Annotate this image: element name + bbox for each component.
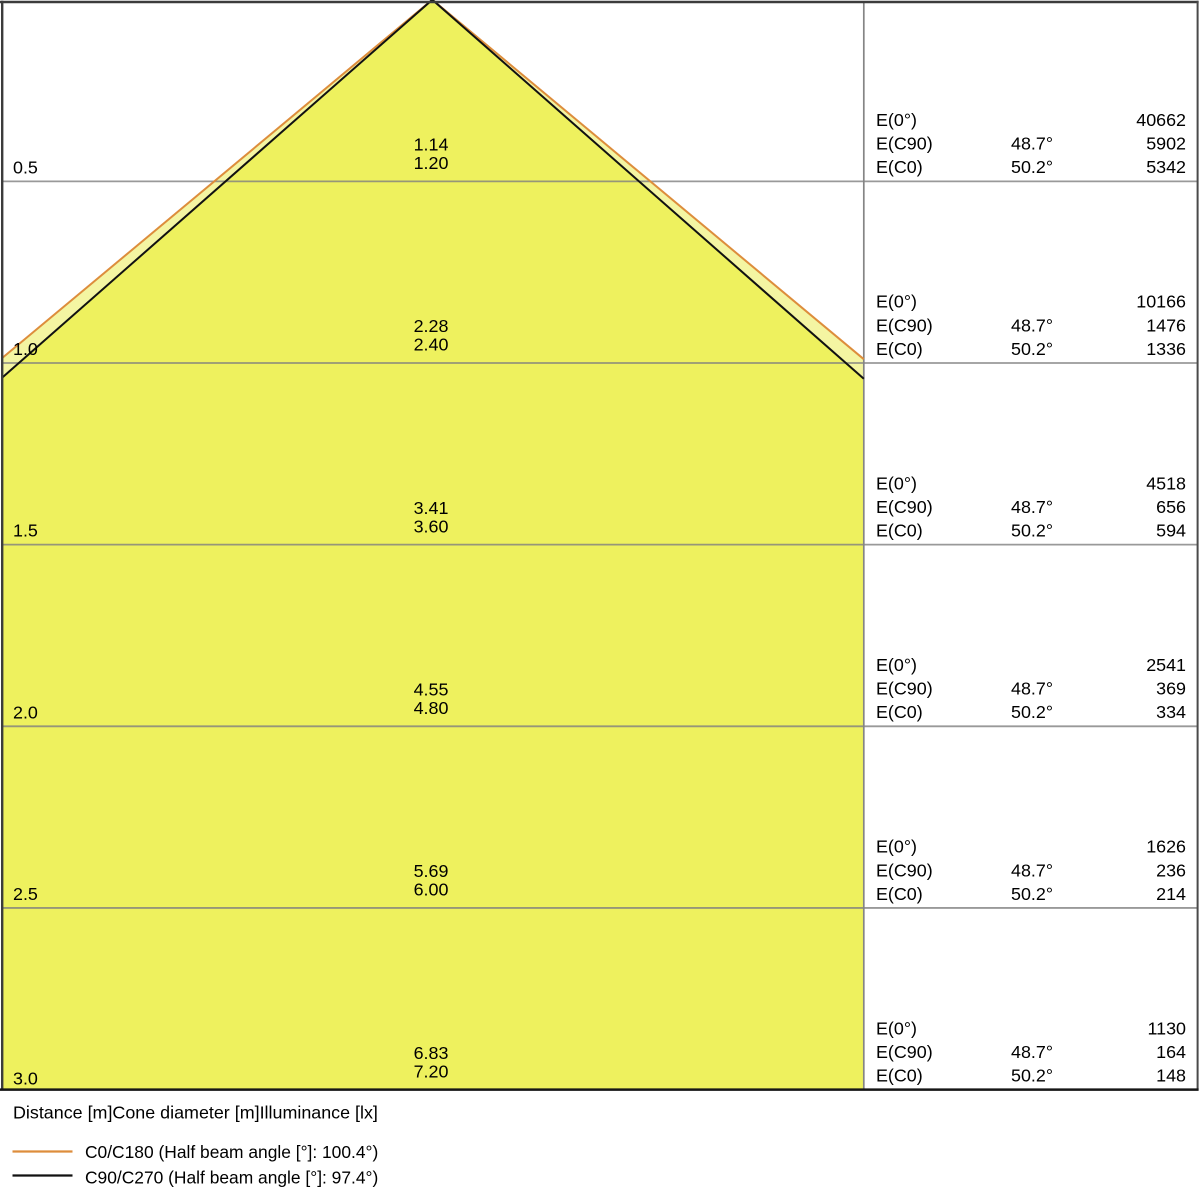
svg-text:48.7°: 48.7° bbox=[1011, 679, 1053, 699]
svg-text:E(0°): E(0°) bbox=[876, 655, 917, 675]
svg-text:50.2°: 50.2° bbox=[1011, 521, 1053, 541]
svg-text:E(C0): E(C0) bbox=[876, 339, 923, 359]
svg-text:1.14: 1.14 bbox=[414, 135, 449, 155]
svg-text:5.69: 5.69 bbox=[414, 861, 449, 881]
svg-text:48.7°: 48.7° bbox=[1011, 497, 1053, 517]
svg-text:E(C90): E(C90) bbox=[876, 315, 933, 335]
svg-text:1336: 1336 bbox=[1146, 339, 1186, 359]
svg-text:334: 334 bbox=[1156, 702, 1186, 722]
svg-text:50.2°: 50.2° bbox=[1011, 1066, 1053, 1086]
svg-text:48.7°: 48.7° bbox=[1011, 860, 1053, 880]
svg-text:2.40: 2.40 bbox=[414, 335, 449, 355]
svg-text:E(0°): E(0°) bbox=[876, 473, 917, 493]
svg-text:E(C0): E(C0) bbox=[876, 884, 923, 904]
svg-text:C90/C270 (Half beam angle [°]:: C90/C270 (Half beam angle [°]: 97.4°) bbox=[85, 1167, 378, 1187]
svg-text:1.5: 1.5 bbox=[13, 521, 38, 541]
svg-text:E(0°): E(0°) bbox=[876, 1018, 917, 1038]
svg-text:E(C90): E(C90) bbox=[876, 860, 933, 880]
svg-text:50.2°: 50.2° bbox=[1011, 702, 1053, 722]
svg-text:E(C0): E(C0) bbox=[876, 1066, 923, 1086]
svg-text:369: 369 bbox=[1156, 679, 1186, 699]
svg-text:E(C90): E(C90) bbox=[876, 134, 933, 154]
svg-text:3.0: 3.0 bbox=[13, 1069, 38, 1089]
svg-text:6.83: 6.83 bbox=[414, 1043, 449, 1063]
svg-text:4518: 4518 bbox=[1146, 473, 1186, 493]
svg-text:1476: 1476 bbox=[1146, 315, 1186, 335]
svg-text:1130: 1130 bbox=[1148, 1018, 1187, 1038]
svg-text:E(C0): E(C0) bbox=[876, 157, 923, 177]
svg-text:7.20: 7.20 bbox=[414, 1061, 449, 1081]
svg-text:10166: 10166 bbox=[1136, 292, 1186, 312]
svg-text:2.28: 2.28 bbox=[414, 316, 449, 336]
svg-text:E(0°): E(0°) bbox=[876, 837, 917, 857]
svg-text:48.7°: 48.7° bbox=[1011, 134, 1053, 154]
svg-text:2.5: 2.5 bbox=[13, 884, 38, 904]
svg-text:E(C90): E(C90) bbox=[876, 497, 933, 517]
svg-text:6.00: 6.00 bbox=[414, 880, 449, 900]
svg-text:5342: 5342 bbox=[1146, 157, 1186, 177]
svg-text:2541: 2541 bbox=[1146, 655, 1186, 675]
svg-text:594: 594 bbox=[1156, 521, 1186, 541]
svg-text:4.55: 4.55 bbox=[414, 680, 449, 700]
svg-text:5902: 5902 bbox=[1146, 134, 1186, 154]
svg-text:48.7°: 48.7° bbox=[1011, 1042, 1053, 1062]
svg-text:656: 656 bbox=[1156, 497, 1186, 517]
svg-text:E(0°): E(0°) bbox=[876, 110, 917, 130]
svg-text:40662: 40662 bbox=[1136, 110, 1186, 130]
svg-text:50.2°: 50.2° bbox=[1011, 339, 1053, 359]
svg-text:50.2°: 50.2° bbox=[1011, 157, 1053, 177]
svg-text:1.0: 1.0 bbox=[13, 339, 38, 359]
svg-text:3.41: 3.41 bbox=[414, 498, 449, 518]
svg-text:1.20: 1.20 bbox=[414, 153, 449, 173]
svg-text:3.60: 3.60 bbox=[414, 516, 449, 536]
svg-text:Distance [m]Cone diameter [m]I: Distance [m]Cone diameter [m]Illuminance… bbox=[13, 1103, 378, 1123]
svg-text:236: 236 bbox=[1156, 860, 1186, 880]
svg-text:164: 164 bbox=[1156, 1042, 1186, 1062]
svg-text:148: 148 bbox=[1156, 1066, 1186, 1086]
svg-text:E(C90): E(C90) bbox=[876, 679, 933, 699]
svg-text:4.80: 4.80 bbox=[414, 698, 449, 718]
svg-text:C0/C180 (Half beam angle [°]:: C0/C180 (Half beam angle [°]: 100.4°) bbox=[85, 1142, 378, 1162]
svg-text:1626: 1626 bbox=[1146, 837, 1186, 857]
svg-text:2.0: 2.0 bbox=[13, 702, 38, 722]
svg-text:0.5: 0.5 bbox=[13, 157, 38, 177]
svg-text:E(C90): E(C90) bbox=[876, 1042, 933, 1062]
svg-text:E(C0): E(C0) bbox=[876, 521, 923, 541]
svg-text:E(C0): E(C0) bbox=[876, 702, 923, 722]
svg-text:E(0°): E(0°) bbox=[876, 292, 917, 312]
svg-text:48.7°: 48.7° bbox=[1011, 315, 1053, 335]
svg-text:50.2°: 50.2° bbox=[1011, 884, 1053, 904]
svg-text:214: 214 bbox=[1156, 884, 1186, 904]
